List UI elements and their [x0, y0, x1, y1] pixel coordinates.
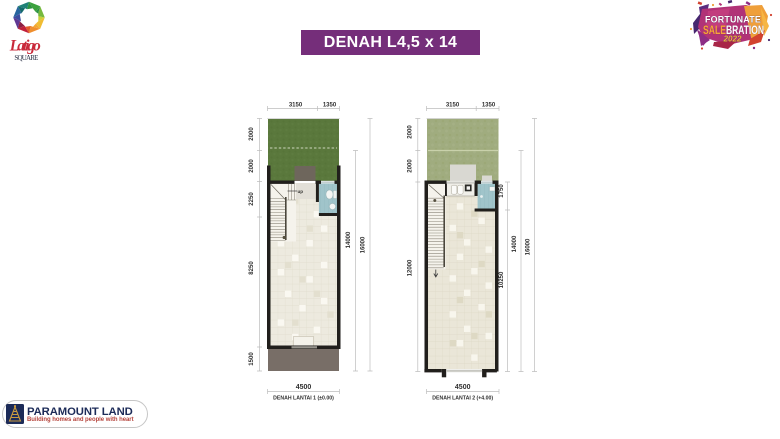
- svg-text:1350: 1350: [323, 103, 337, 109]
- svg-text:DENAH LANTAI 1 (±0.00): DENAH LANTAI 1 (±0.00): [273, 396, 334, 402]
- svg-text:2022: 2022: [723, 34, 742, 44]
- svg-text:16000: 16000: [361, 236, 367, 253]
- svg-text:2250: 2250: [249, 192, 255, 206]
- svg-text:2000: 2000: [408, 159, 414, 173]
- svg-text:14000: 14000: [512, 235, 518, 252]
- svg-text:1350: 1350: [482, 103, 496, 109]
- svg-text:1750: 1750: [499, 184, 505, 198]
- svg-text:12000: 12000: [408, 259, 414, 276]
- svg-text:SQUARE: SQUARE: [14, 54, 38, 62]
- svg-text:1500: 1500: [249, 352, 255, 366]
- svg-text:Latigo: Latigo: [9, 38, 41, 55]
- svg-text:16000: 16000: [526, 238, 532, 255]
- svg-text:FORTUNATE: FORTUNATE: [705, 15, 761, 26]
- svg-text:2000: 2000: [408, 125, 414, 139]
- svg-text:10250: 10250: [499, 271, 505, 288]
- svg-text:up: up: [298, 189, 304, 194]
- svg-text:8250: 8250: [249, 261, 255, 275]
- svg-text:4500: 4500: [455, 384, 471, 391]
- svg-text:3150: 3150: [289, 103, 303, 109]
- svg-text:2000: 2000: [249, 159, 255, 173]
- svg-text:14000: 14000: [346, 231, 352, 248]
- svg-text:3150: 3150: [446, 103, 460, 109]
- svg-text:4500: 4500: [296, 384, 312, 391]
- svg-text:2000: 2000: [249, 127, 255, 141]
- svg-text:DENAH LANTAI 2 (+4.00): DENAH LANTAI 2 (+4.00): [432, 396, 493, 402]
